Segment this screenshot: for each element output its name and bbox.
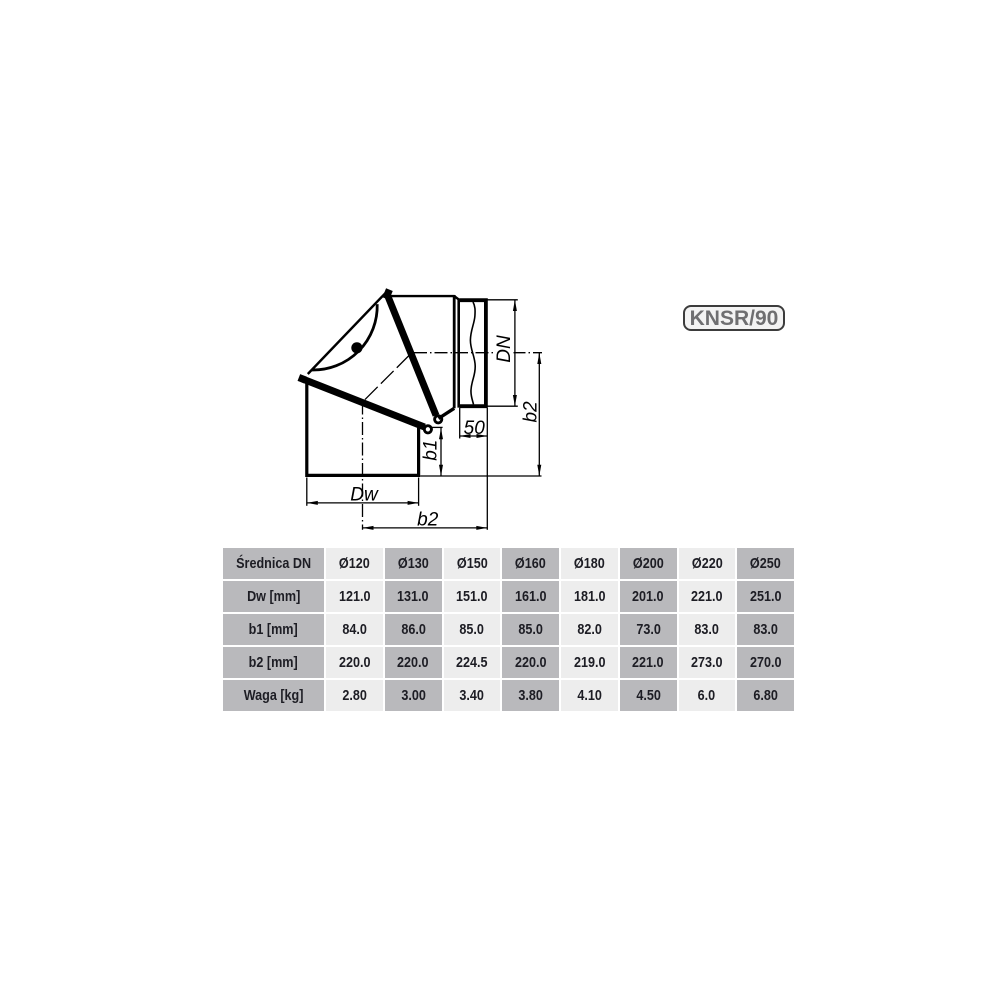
svg-text:50: 50 bbox=[464, 418, 486, 439]
svg-text:b1: b1 bbox=[421, 440, 442, 461]
svg-text:DN: DN bbox=[494, 335, 515, 363]
svg-text:b2: b2 bbox=[520, 401, 541, 423]
svg-text:b2: b2 bbox=[417, 510, 439, 531]
svg-text:Dw: Dw bbox=[350, 484, 379, 505]
